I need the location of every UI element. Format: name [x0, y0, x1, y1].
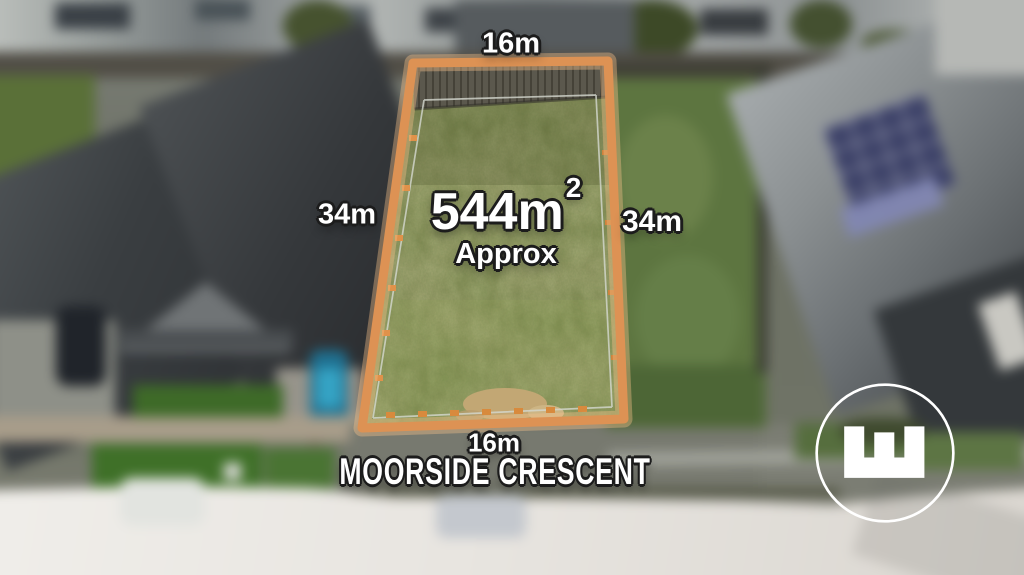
area-qualifier: Approx	[431, 238, 582, 270]
street-name-label: MOORSIDE CRESCENT	[339, 451, 650, 493]
real-estate-aerial-photo: 16m 34m 34m 544m2 Approx 16m MOORSIDE CR…	[0, 0, 1024, 575]
w-monogram-icon	[814, 382, 956, 524]
dimension-label-top-width: 16m	[482, 28, 540, 61]
area-value: 544m	[431, 183, 564, 241]
dimension-label-left-depth: 34m	[318, 199, 376, 232]
brand-logo	[814, 382, 956, 524]
area-label: 544m2 Approx	[431, 186, 582, 270]
area-exponent: 2	[566, 172, 582, 203]
dimension-label-right-depth: 34m	[622, 205, 682, 239]
